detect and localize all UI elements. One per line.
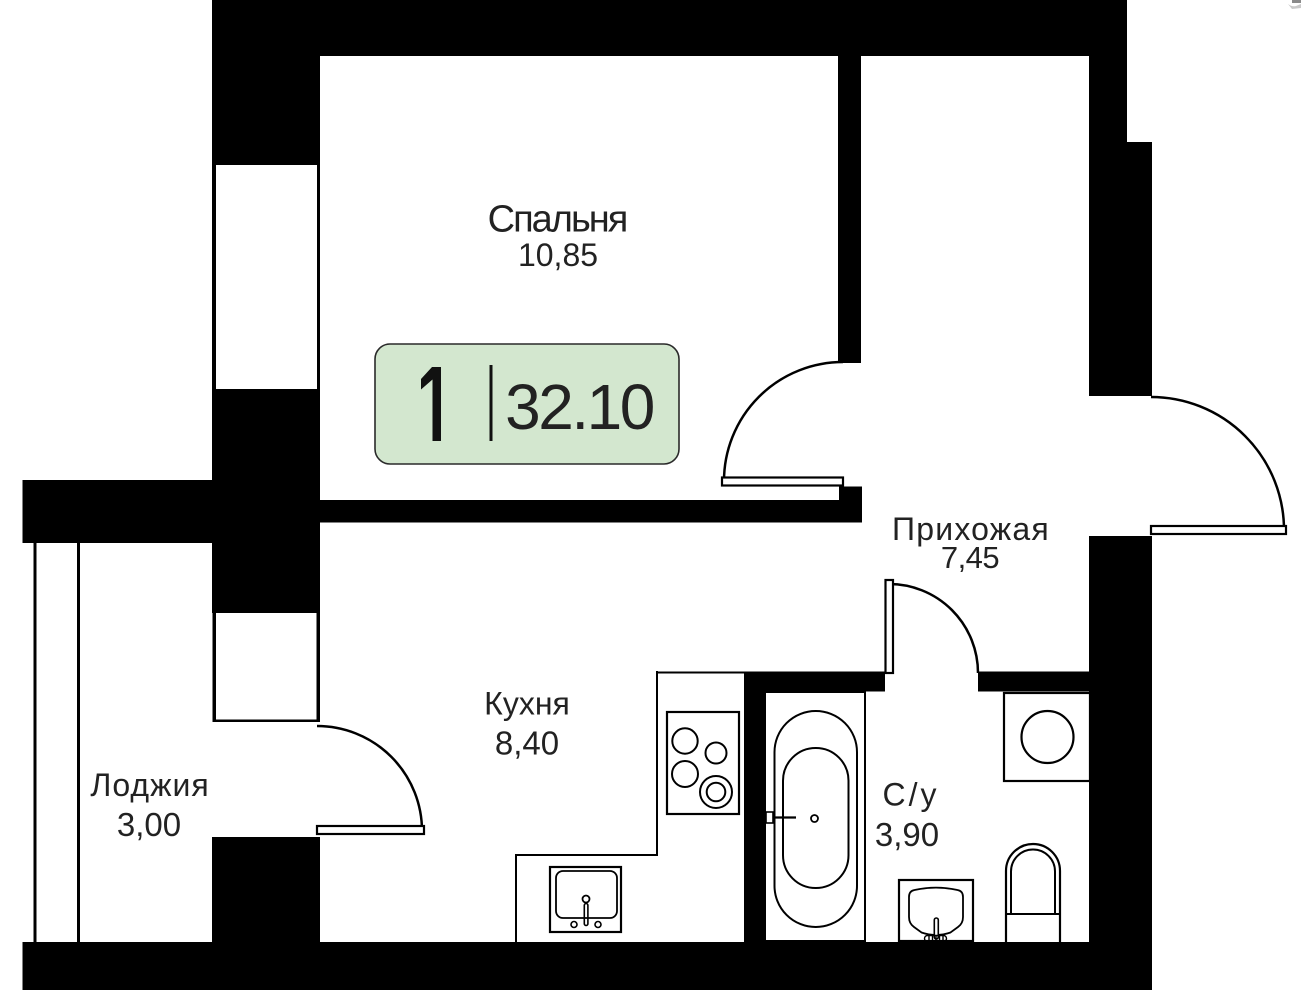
svg-text:Спальня: Спальня: [488, 199, 627, 241]
svg-text:С/у: С/у: [883, 777, 940, 813]
svg-text:Лоджия: Лоджия: [90, 767, 209, 803]
svg-text:3,90: 3,90: [875, 816, 939, 853]
svg-text:8,40: 8,40: [495, 725, 559, 762]
svg-text:7,45: 7,45: [941, 540, 999, 575]
svg-text:32.10: 32.10: [505, 371, 654, 443]
svg-text:Кухня: Кухня: [484, 686, 570, 722]
svg-text:10,85: 10,85: [518, 237, 598, 273]
svg-text:3,00: 3,00: [117, 806, 181, 843]
